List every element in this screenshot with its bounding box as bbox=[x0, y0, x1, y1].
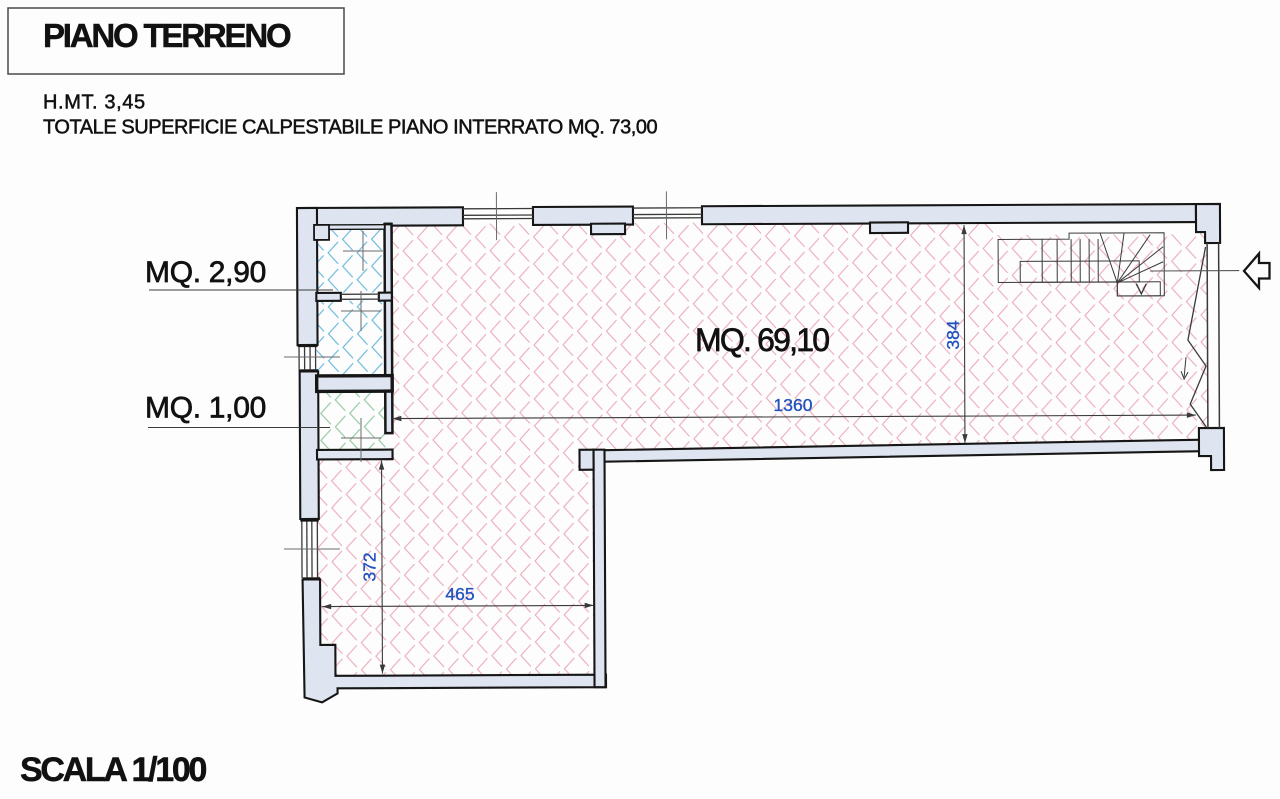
svg-text:465: 465 bbox=[445, 584, 474, 604]
svg-text:372: 372 bbox=[360, 552, 380, 581]
svg-text:H.MT. 3,45: H.MT. 3,45 bbox=[43, 92, 146, 114]
svg-text:PIANO TERRENO: PIANO TERRENO bbox=[43, 17, 291, 54]
svg-text:384: 384 bbox=[943, 320, 963, 349]
svg-text:MQ. 1,00: MQ. 1,00 bbox=[145, 392, 266, 425]
svg-text:TOTALE SUPERFICIE CALPESTABILE: TOTALE SUPERFICIE CALPESTABILE PIANO INT… bbox=[43, 117, 658, 139]
svg-text:SCALA 1/100: SCALA 1/100 bbox=[20, 751, 206, 789]
svg-text:1360: 1360 bbox=[774, 395, 813, 415]
svg-text:MQ. 69,10: MQ. 69,10 bbox=[695, 322, 829, 358]
svg-text:MQ. 2,90: MQ. 2,90 bbox=[145, 256, 266, 289]
